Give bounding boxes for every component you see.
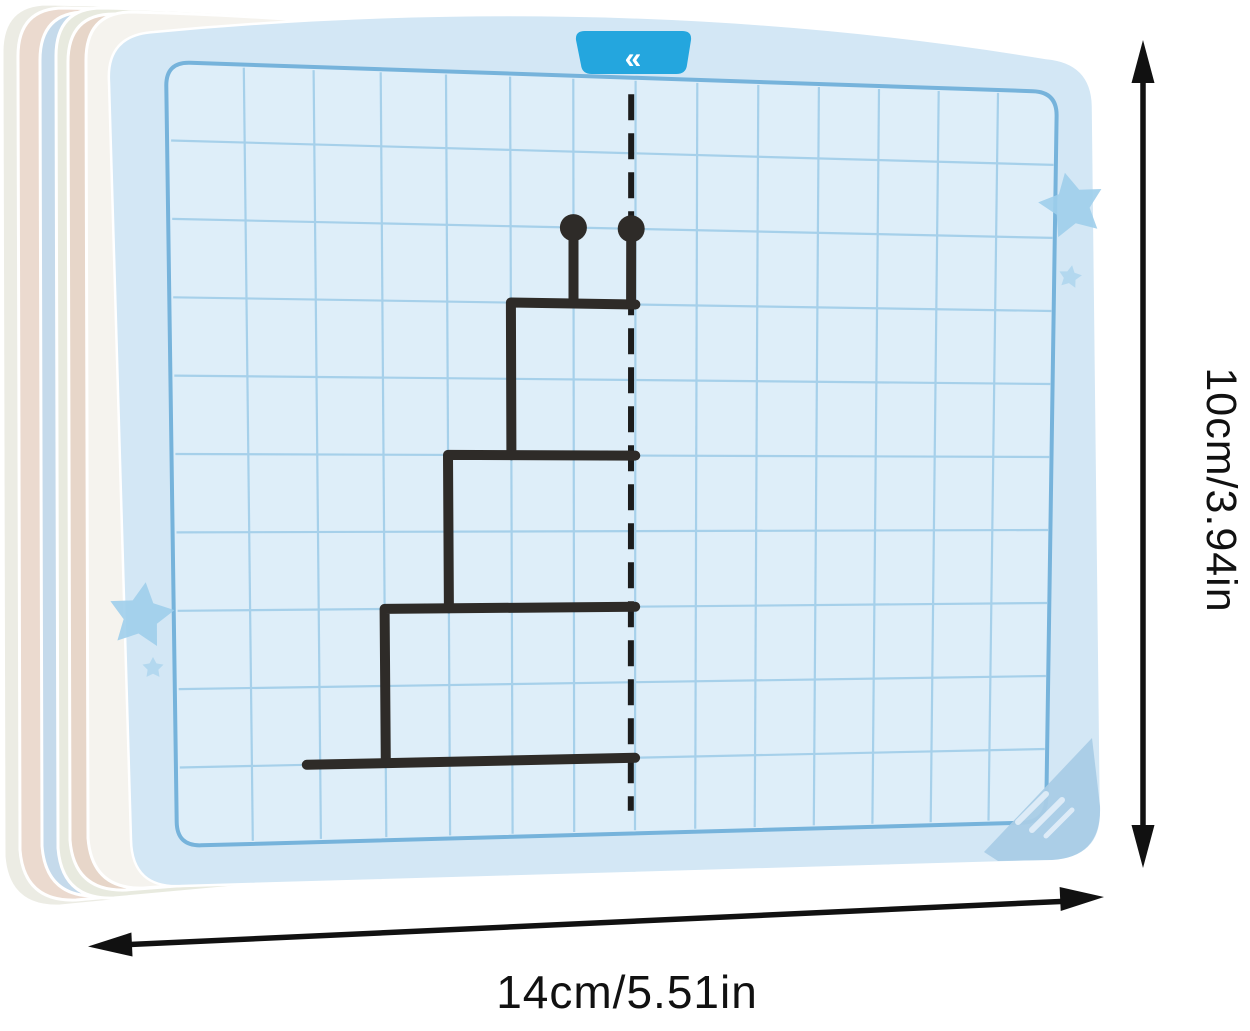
tab-glyph: « <box>625 42 642 75</box>
arrow-up-icon <box>1132 40 1155 83</box>
arrow-down-icon <box>1132 825 1155 868</box>
width-label: 14cm/5.51in <box>496 966 758 1018</box>
candle-dot <box>618 215 645 242</box>
width-arrow <box>88 887 1104 957</box>
product-photo: « 10cm/3.94in 14cm/5.51in <box>0 0 1250 1031</box>
arrow-left-icon <box>88 933 133 957</box>
height-arrow <box>1132 40 1155 868</box>
arrow-right-icon <box>1060 887 1104 911</box>
candle-dot <box>560 214 587 241</box>
width-arrow-line <box>126 901 1066 945</box>
height-label: 10cm/3.94in <box>1197 367 1245 612</box>
figure-base <box>307 758 635 765</box>
scene-canvas: « 10cm/3.94in 14cm/5.51in <box>0 0 1250 1031</box>
